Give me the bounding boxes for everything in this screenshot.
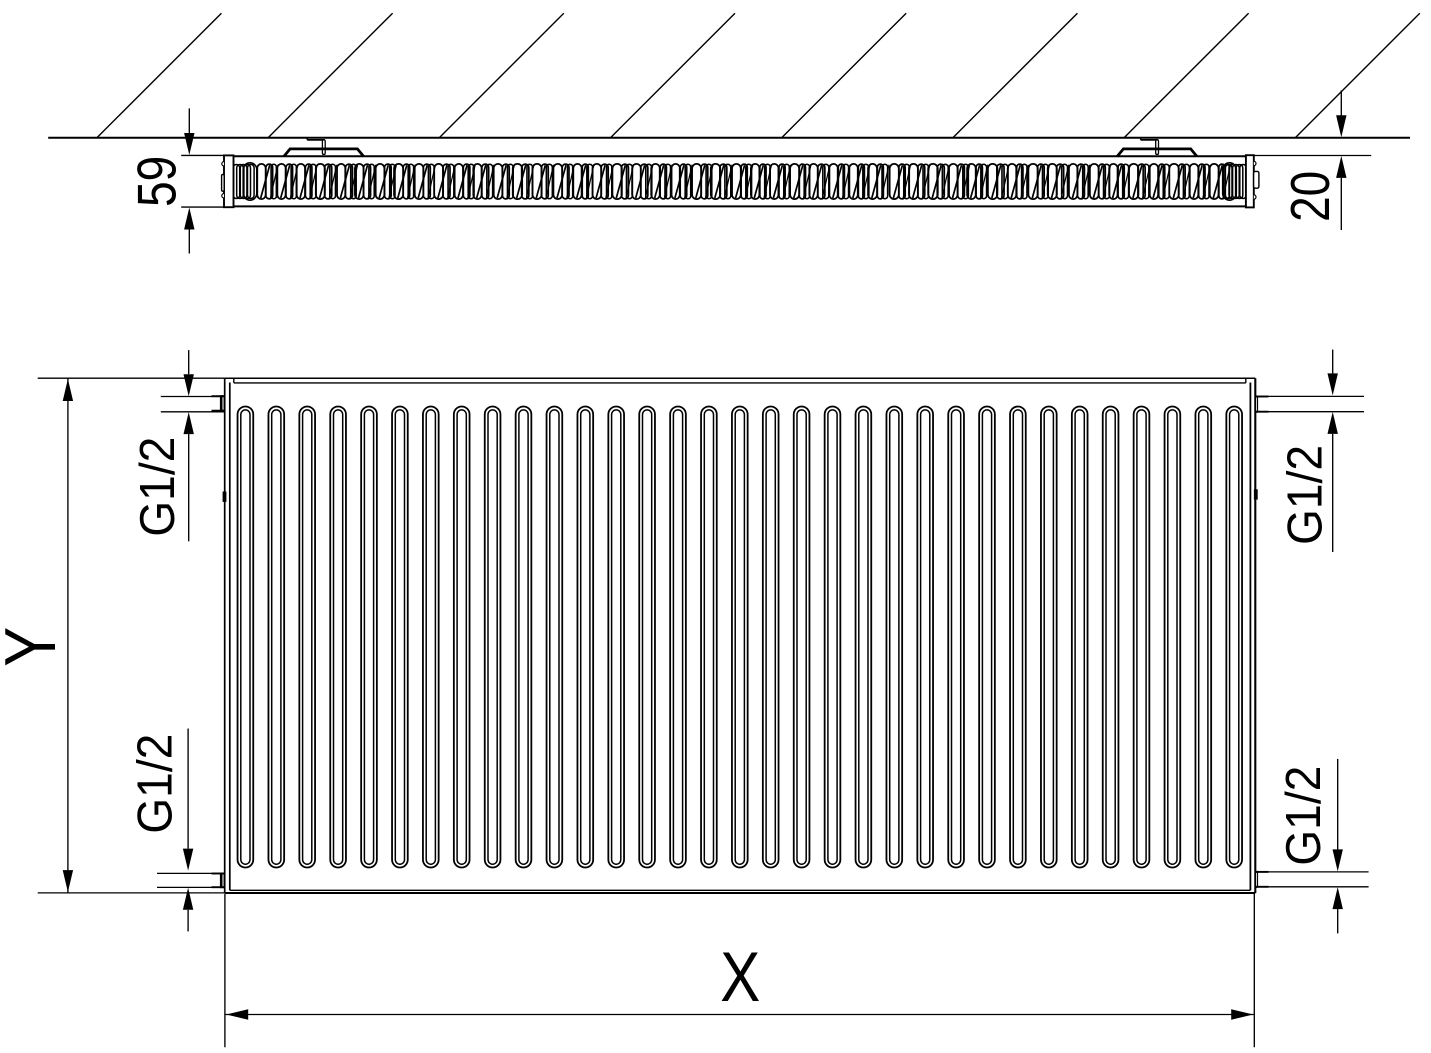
svg-text:G1/2: G1/2	[129, 734, 183, 834]
svg-text:G1/2: G1/2	[131, 437, 185, 537]
svg-text:G1/2: G1/2	[1279, 445, 1333, 545]
svg-text:59: 59	[127, 156, 188, 207]
svg-text:20: 20	[1280, 171, 1341, 222]
svg-text:G1/2: G1/2	[1277, 766, 1331, 866]
svg-text:X: X	[720, 938, 760, 1017]
svg-text:Y: Y	[0, 627, 71, 667]
